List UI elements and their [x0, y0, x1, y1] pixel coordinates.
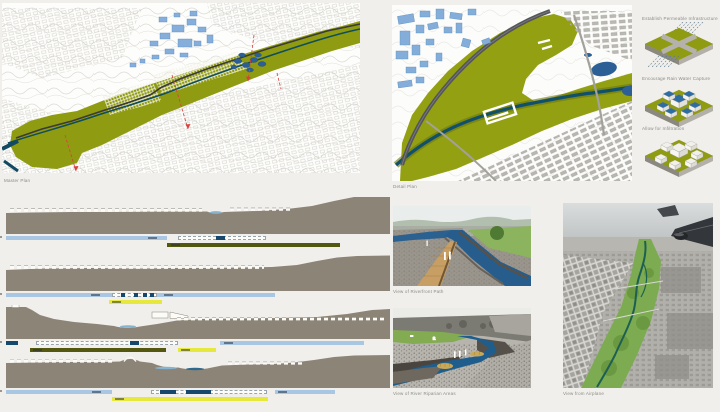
presentation-board: Master Plan: [0, 0, 720, 412]
section-drawing-2: [2, 255, 390, 306]
diagram-rainwater-capture: Encourage Rain Water Capture: [641, 76, 719, 128]
yellow-landuse-bar: [112, 397, 268, 401]
water-feature-segment: [216, 236, 225, 240]
yellow-landuse-bar: [178, 348, 216, 352]
water-feature-segment: [186, 390, 211, 394]
diagram-caption: Establish Permeable Infrastructure: [642, 16, 719, 21]
detail-plan-map: [392, 5, 632, 181]
section-terrain: [2, 305, 390, 339]
diagram-permeable-graphic: [641, 22, 717, 70]
detail-plan-caption: Detail Plan: [393, 184, 417, 189]
diagram-rainwater-graphic: [641, 82, 717, 128]
river-channel: [210, 211, 222, 214]
navy-landuse-bar: [6, 341, 18, 345]
proposed-zone-bar: [151, 390, 267, 394]
riverfront-render-panel: View of Riverfront Path: [393, 206, 531, 286]
yellow-landuse-bar: [109, 300, 162, 304]
section-drawing-4: [2, 355, 390, 403]
bar-microtext: [92, 391, 101, 393]
bar-microtext: [91, 294, 100, 296]
water-feature-segment: [121, 293, 125, 297]
master-plan-map: [2, 3, 360, 173]
water-feature-segment: [160, 390, 176, 394]
water-feature-segment: [143, 293, 147, 297]
landuse-bars: [2, 390, 390, 403]
section-tag: [0, 341, 2, 343]
riparian-render: [393, 308, 531, 388]
aerial-render-panel: View from Airplane: [563, 203, 713, 388]
riverfront-caption: View of Riverfront Path: [393, 289, 444, 294]
riparian-caption: View of River Riparian Areas: [393, 391, 456, 396]
proposed-zone-bar: [178, 236, 266, 240]
diagram-infiltration-graphic: [641, 132, 717, 178]
landuse-bars: [2, 236, 390, 249]
bar-microtext: [164, 294, 173, 296]
proposed-zone-bar: [36, 341, 178, 345]
diagram-caption: Encourage Rain Water Capture: [642, 76, 719, 81]
river-channel: [186, 368, 204, 371]
river-channel: [155, 367, 177, 370]
detail-plan-panel: Detail Plan: [392, 5, 632, 181]
lightblue-landuse-bar: [275, 390, 335, 394]
riparian-render-panel: View of River Riparian Areas: [393, 308, 531, 388]
river-channel: [120, 325, 136, 328]
bar-microtext: [224, 342, 233, 344]
olive-landuse-bar: [167, 243, 340, 247]
section-terrain: [2, 355, 390, 388]
section-tag: [0, 293, 2, 295]
aerial-render: [563, 203, 713, 388]
section-drawing-1: [2, 197, 390, 249]
section-tag: [0, 390, 2, 392]
riverfront-render: [393, 206, 531, 286]
bar-microtext: [33, 349, 42, 351]
diagram-permeable-infrastructure: Establish Permeable Infrastructure: [641, 16, 719, 70]
large-building: [152, 312, 168, 318]
lightblue-landuse-bar: [6, 236, 167, 240]
master-plan-caption: Master Plan: [4, 178, 30, 183]
aerial-caption: View from Airplane: [563, 391, 604, 396]
lightblue-landuse-bar: [6, 390, 112, 394]
water-feature-segment: [134, 293, 138, 297]
water-feature-segment: [130, 341, 139, 345]
diagram-caption: Allow for Infiltration: [642, 126, 719, 131]
section-terrain: [2, 255, 390, 291]
lightblue-landuse-bar: [220, 341, 364, 345]
bar-microtext: [278, 391, 287, 393]
section-terrain: [2, 197, 390, 234]
olive-landuse-bar: [30, 348, 166, 352]
landuse-bars: [2, 341, 390, 354]
tree: [490, 226, 504, 240]
proposed-zone-bar: [112, 293, 157, 297]
water-feature-segment: [150, 293, 154, 297]
diagram-infiltration: Allow for Infiltration: [641, 126, 719, 178]
bar-microtext: [148, 237, 157, 239]
bar-microtext: [112, 301, 121, 303]
bar-microtext: [171, 244, 180, 246]
bar-microtext: [115, 398, 124, 400]
section-drawing-3: [2, 305, 390, 354]
master-plan-panel: Master Plan: [2, 3, 360, 173]
section-tag: [0, 236, 2, 238]
bar-microtext: [181, 349, 190, 351]
